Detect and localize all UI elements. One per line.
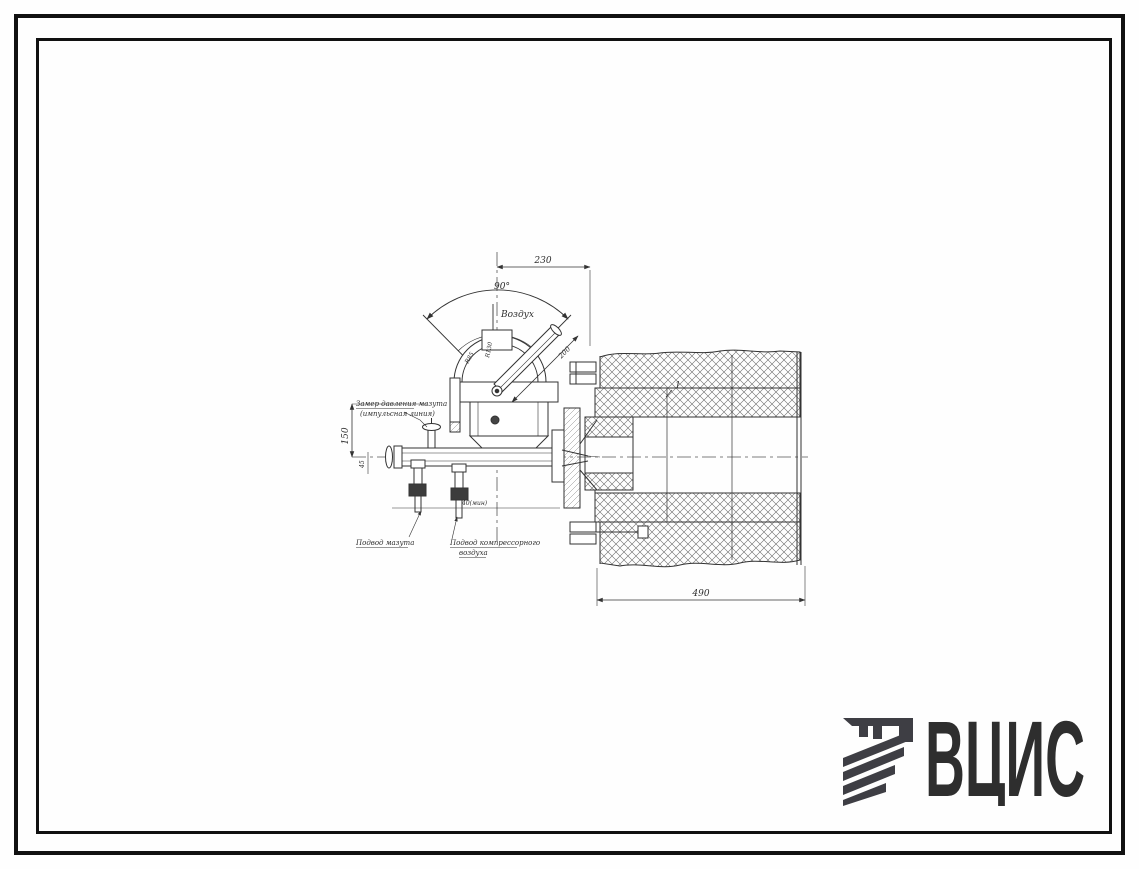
- scanned-drawing-page: 1 90° Воздух: [0, 0, 1139, 869]
- air-supply-leader: [452, 517, 457, 539]
- dim-230-label: 230: [533, 256, 551, 266]
- mounting-flange: [552, 430, 564, 482]
- pressure-tap-label-1: Замер давления мазута: [356, 400, 447, 408]
- air-connection: [451, 464, 468, 518]
- dim-200-label: 200: [556, 345, 572, 361]
- air-flow-label: Воздух: [500, 310, 534, 320]
- wall-upper-band: [600, 350, 800, 388]
- pressure-tap-label-2: (импульсная линия): [360, 410, 435, 418]
- dim-40-min-label: 40(мин): [461, 500, 488, 507]
- dim-490-label: 490: [691, 589, 709, 599]
- burner-body: [470, 402, 548, 436]
- anchor-bolt-top: [570, 362, 596, 384]
- fuel-supply-leader: [409, 511, 421, 537]
- vcis-logo-icon: [843, 718, 913, 806]
- dim-150-label: 150: [341, 427, 351, 444]
- wall-mid-band: [595, 388, 800, 417]
- burner-tile-bottom: [585, 473, 633, 490]
- fuel-connection: [409, 460, 426, 512]
- dim-490: [597, 566, 805, 606]
- wall-lower-band: [595, 493, 800, 522]
- furnace-wall: [570, 350, 801, 567]
- air-supply-label-1: Подвод компрессорного: [449, 539, 540, 547]
- dim-45-label: 45: [359, 460, 366, 469]
- mounting-plate: [564, 408, 580, 508]
- fuel-supply-label: Подвод мазута: [355, 539, 414, 547]
- burner-assembly: [386, 402, 601, 518]
- vcis-logo-graphic: ВЦИС: [843, 714, 1093, 806]
- angle-90-label: 90°: [494, 282, 510, 292]
- pressure-tap-valve: [423, 418, 441, 448]
- wall-bottom-band: [600, 522, 800, 567]
- callout-1-label: 1: [675, 381, 681, 391]
- vcis-logo-text: ВЦИС: [925, 714, 1085, 806]
- vcis-logo: ВЦИС: [843, 714, 1093, 810]
- air-supply-label-2: воздуха: [459, 549, 488, 557]
- handwheel: [386, 446, 393, 468]
